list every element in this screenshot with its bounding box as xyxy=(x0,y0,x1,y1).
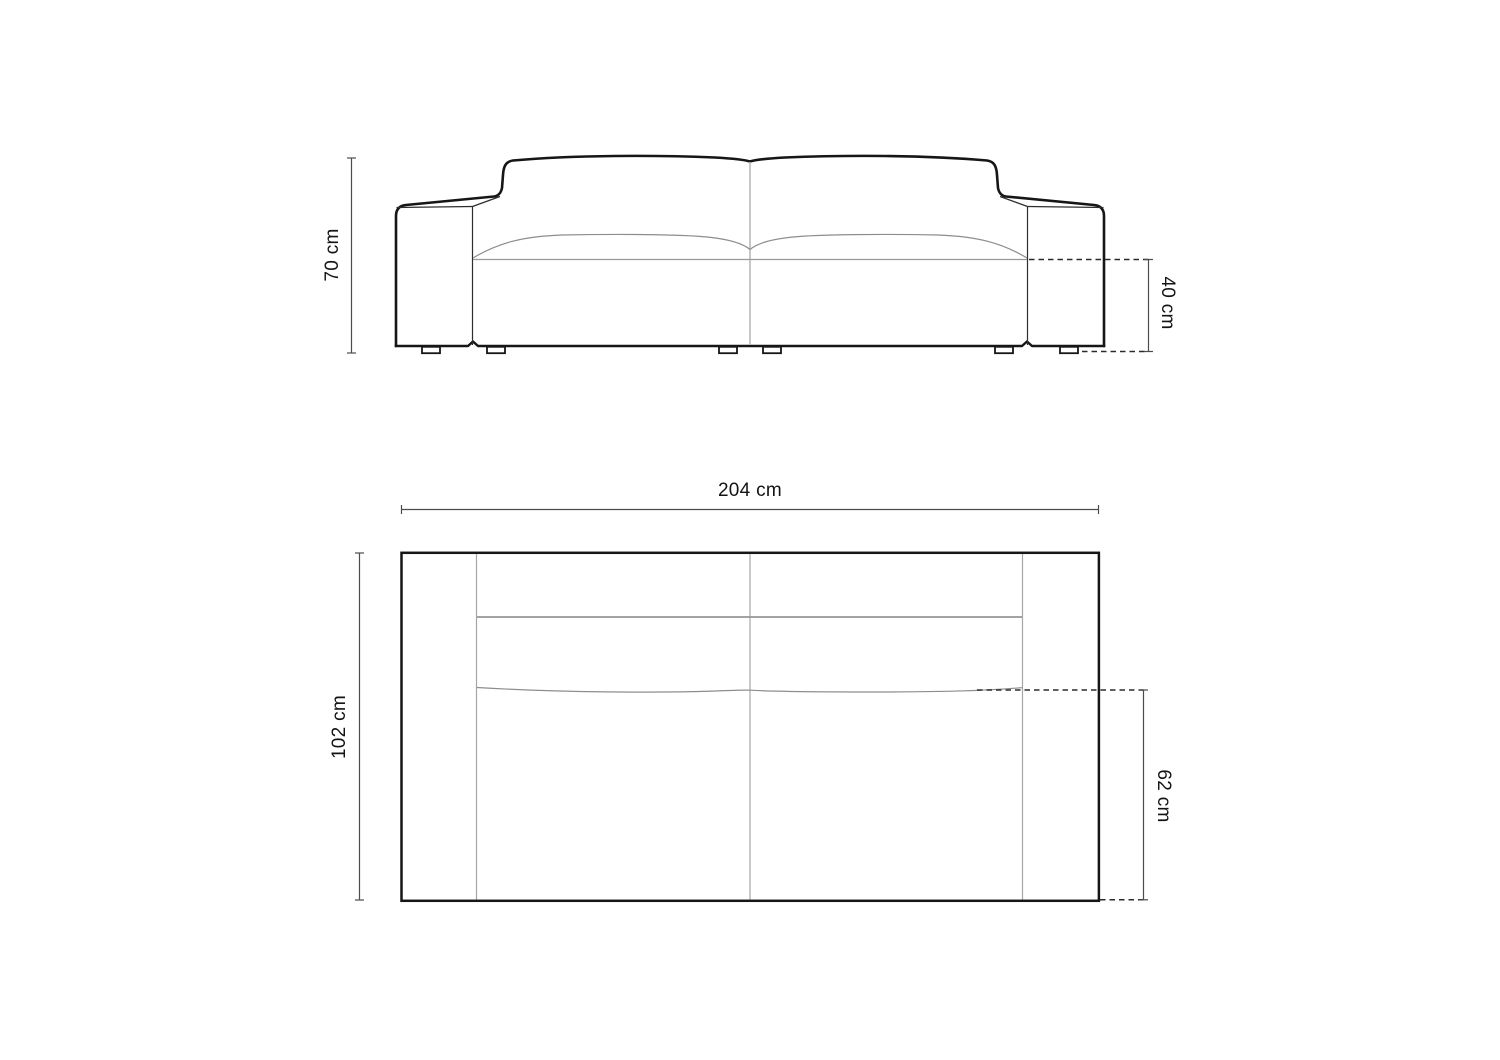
label-seat-height: 40 cm xyxy=(1156,276,1178,329)
dimension-total-depth xyxy=(355,553,364,900)
diagram-canvas xyxy=(0,0,1500,1060)
dimension-total-width xyxy=(402,505,1099,514)
label-total-height: 70 cm xyxy=(322,228,344,281)
label-total-width: 204 cm xyxy=(718,480,782,502)
label-total-depth: 102 cm xyxy=(329,695,351,759)
front-feet xyxy=(422,347,1078,353)
sofa-top-view xyxy=(402,553,1099,901)
sofa-dimension-diagram: 70 cm 40 cm 204 cm 102 cm 62 cm xyxy=(0,0,1500,1060)
sofa-front-view xyxy=(395,156,1106,353)
dimension-total-height xyxy=(347,158,356,353)
dimension-seat-height xyxy=(1029,260,1153,352)
label-seat-depth: 62 cm xyxy=(1152,769,1174,822)
